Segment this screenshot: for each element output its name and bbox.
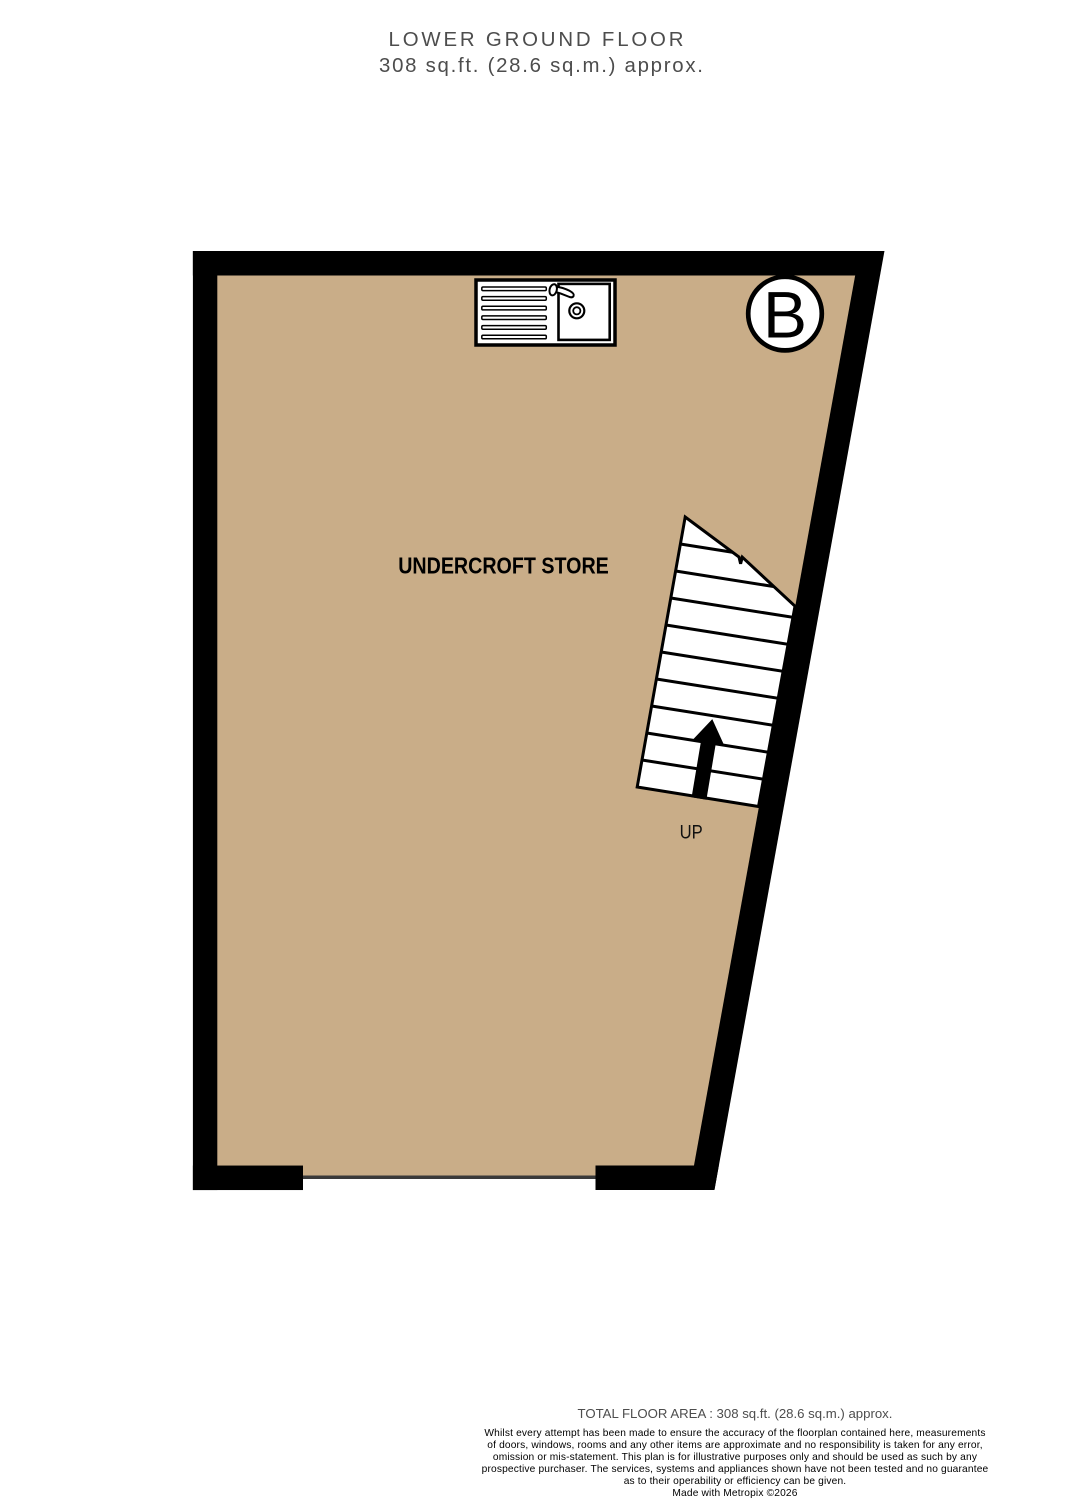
svg-text:UNDERCROFT STORE: UNDERCROFT STORE (398, 553, 609, 579)
svg-text:UP: UP (680, 822, 703, 844)
svg-text:B: B (763, 278, 807, 352)
